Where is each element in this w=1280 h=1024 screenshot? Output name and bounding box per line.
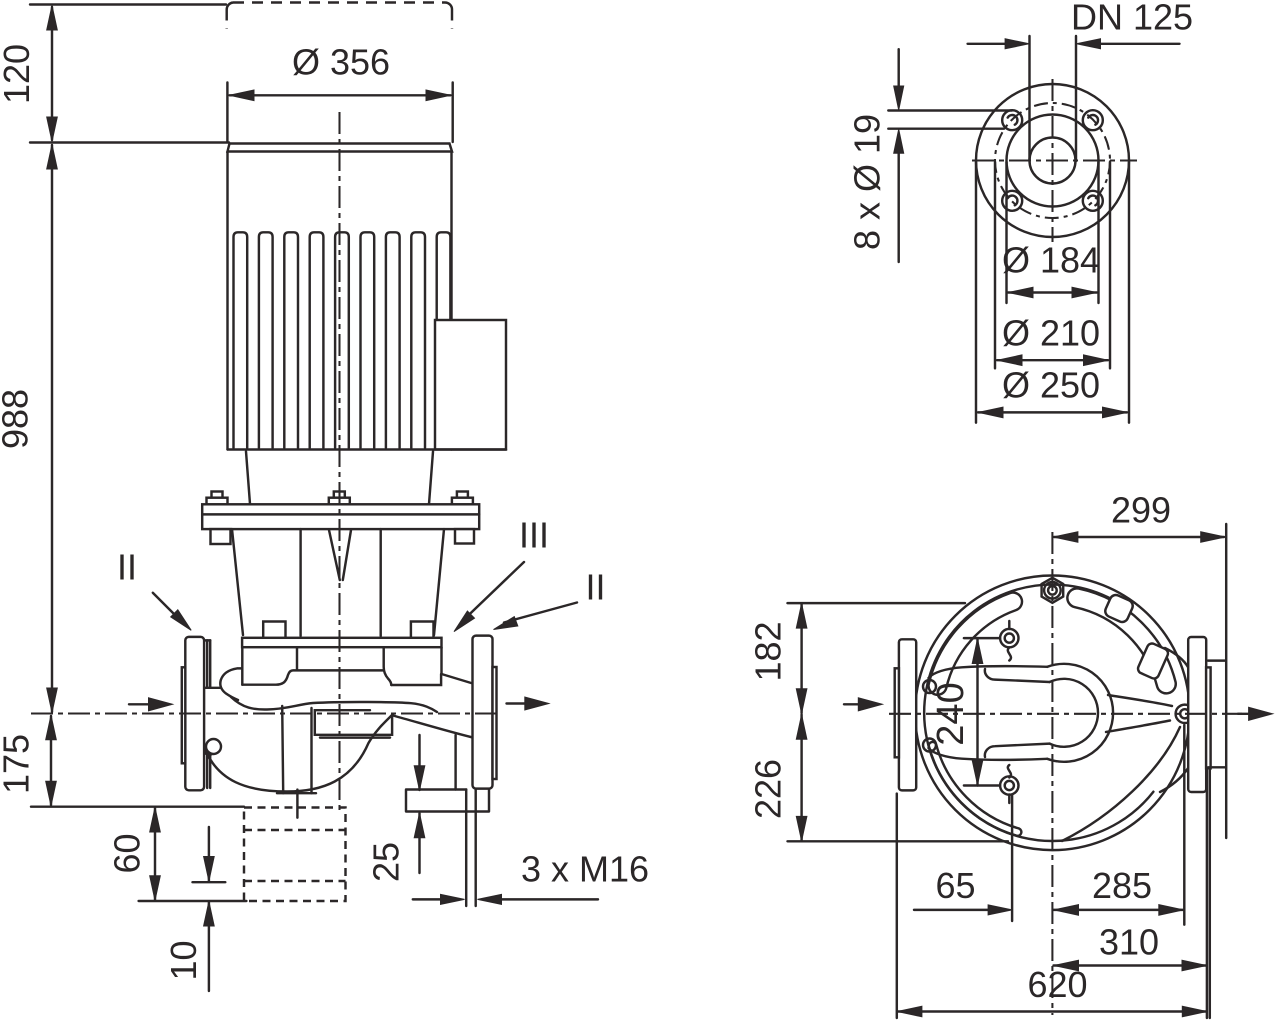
svg-text:II: II [585, 567, 605, 608]
svg-text:III: III [519, 515, 549, 556]
svg-text:60: 60 [107, 833, 148, 873]
svg-text:25: 25 [366, 842, 407, 882]
svg-text:175: 175 [0, 734, 37, 794]
svg-text:Ø 356: Ø 356 [292, 42, 390, 83]
svg-text:620: 620 [1027, 964, 1087, 1005]
svg-text:182: 182 [748, 621, 789, 681]
svg-text:3 x M16: 3 x M16 [521, 849, 649, 890]
svg-text:299: 299 [1111, 490, 1171, 531]
svg-text:8 x Ø 19: 8 x Ø 19 [847, 114, 888, 250]
svg-text:II: II [117, 547, 137, 588]
svg-text:Ø 184: Ø 184 [1002, 240, 1100, 281]
svg-text:226: 226 [748, 759, 789, 819]
svg-text:120: 120 [0, 44, 37, 104]
svg-text:10: 10 [163, 940, 204, 980]
svg-text:DN 125: DN 125 [1071, 0, 1193, 38]
svg-text:240: 240 [930, 682, 972, 745]
svg-text:285: 285 [1092, 865, 1152, 906]
svg-text:65: 65 [935, 865, 975, 906]
svg-text:Ø 210: Ø 210 [1002, 313, 1100, 354]
svg-text:Ø 250: Ø 250 [1002, 365, 1100, 406]
svg-text:310: 310 [1099, 922, 1159, 963]
svg-text:988: 988 [0, 389, 36, 449]
